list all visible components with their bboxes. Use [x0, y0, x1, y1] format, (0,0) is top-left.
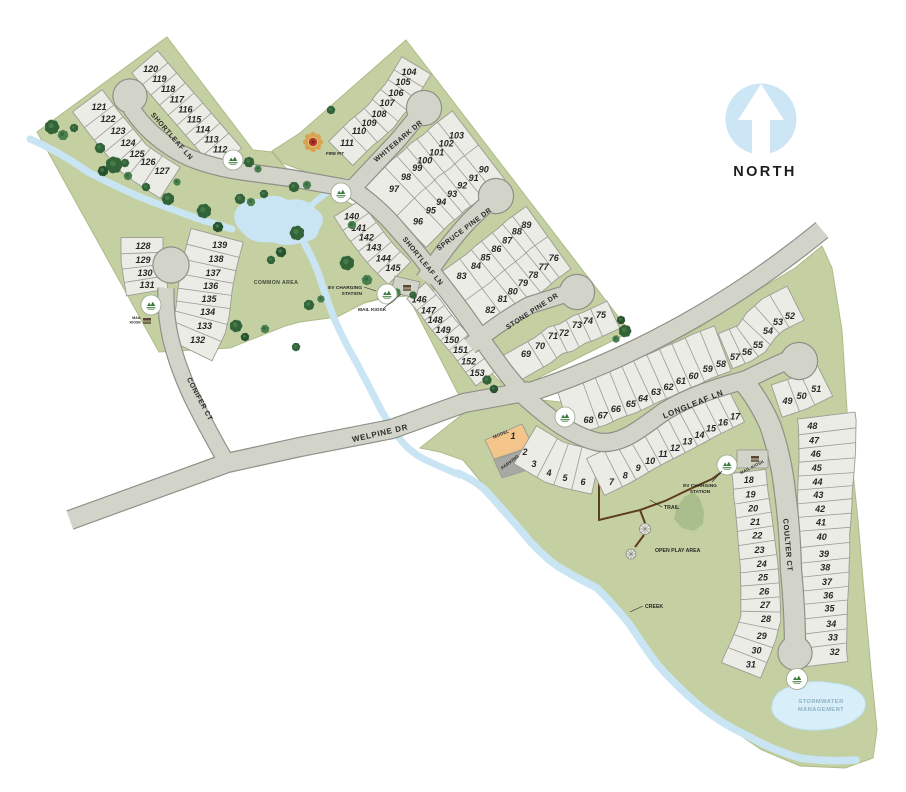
- svg-text:44: 44: [811, 477, 822, 487]
- svg-text:31: 31: [746, 660, 756, 670]
- svg-text:TRAIL: TRAIL: [664, 505, 680, 511]
- svg-text:92: 92: [457, 181, 467, 191]
- svg-text:9: 9: [636, 463, 641, 473]
- svg-text:15: 15: [706, 424, 717, 434]
- svg-text:38: 38: [820, 563, 830, 573]
- svg-text:20: 20: [747, 504, 758, 514]
- svg-text:52: 52: [785, 311, 795, 321]
- svg-text:49: 49: [781, 396, 792, 406]
- svg-text:132: 132: [190, 335, 205, 345]
- svg-text:94: 94: [436, 197, 446, 207]
- svg-text:66: 66: [611, 404, 622, 414]
- svg-text:103: 103: [449, 131, 464, 141]
- svg-text:1: 1: [510, 431, 515, 441]
- svg-text:107: 107: [379, 98, 395, 108]
- svg-text:KIOSK: KIOSK: [130, 321, 142, 325]
- svg-text:91: 91: [469, 173, 479, 183]
- svg-text:124: 124: [120, 138, 135, 148]
- svg-text:59: 59: [703, 364, 713, 374]
- svg-text:21: 21: [749, 517, 760, 527]
- svg-text:97: 97: [389, 184, 400, 194]
- svg-text:142: 142: [359, 233, 374, 243]
- svg-text:96: 96: [413, 217, 424, 227]
- svg-text:30: 30: [751, 646, 761, 656]
- svg-text:65: 65: [626, 399, 637, 409]
- svg-text:13: 13: [682, 437, 692, 447]
- svg-text:98: 98: [401, 172, 411, 182]
- svg-text:83: 83: [457, 271, 467, 281]
- svg-text:34: 34: [826, 619, 836, 629]
- svg-text:42: 42: [814, 504, 825, 514]
- svg-text:139: 139: [212, 240, 227, 250]
- svg-text:136: 136: [203, 281, 219, 291]
- svg-text:116: 116: [178, 104, 193, 114]
- svg-text:40: 40: [816, 532, 827, 542]
- svg-text:112: 112: [213, 145, 227, 155]
- svg-text:47: 47: [808, 435, 820, 445]
- svg-text:63: 63: [651, 387, 661, 397]
- svg-text:152: 152: [461, 357, 476, 367]
- svg-text:114: 114: [196, 124, 210, 134]
- svg-text:50: 50: [797, 391, 807, 401]
- svg-text:131: 131: [139, 280, 154, 290]
- svg-text:37: 37: [822, 577, 833, 587]
- svg-text:153: 153: [470, 368, 485, 378]
- svg-text:EV CHARGING: EV CHARGING: [328, 285, 362, 291]
- svg-text:129: 129: [135, 255, 150, 265]
- svg-text:16: 16: [718, 418, 729, 428]
- svg-text:36: 36: [823, 591, 834, 601]
- svg-text:51: 51: [811, 384, 821, 394]
- svg-text:3: 3: [531, 459, 536, 469]
- svg-text:72: 72: [559, 328, 569, 338]
- svg-text:90: 90: [479, 165, 489, 175]
- svg-text:78: 78: [528, 270, 538, 280]
- svg-text:19: 19: [745, 489, 755, 499]
- svg-text:12: 12: [670, 443, 680, 453]
- svg-text:OPEN PLAY AREA: OPEN PLAY AREA: [655, 548, 701, 554]
- svg-text:111: 111: [340, 138, 354, 148]
- svg-text:NORTH: NORTH: [733, 164, 797, 180]
- svg-text:138: 138: [208, 254, 223, 264]
- svg-text:23: 23: [753, 545, 764, 555]
- svg-text:75: 75: [596, 310, 607, 320]
- svg-text:144: 144: [376, 254, 391, 264]
- svg-text:130: 130: [137, 268, 152, 278]
- svg-text:115: 115: [187, 114, 202, 124]
- svg-text:27: 27: [759, 600, 771, 610]
- svg-text:29: 29: [756, 631, 767, 641]
- svg-text:123: 123: [110, 126, 125, 136]
- svg-text:58: 58: [716, 359, 726, 369]
- svg-text:43: 43: [812, 490, 823, 500]
- svg-text:25: 25: [757, 573, 769, 583]
- svg-text:135: 135: [201, 294, 217, 304]
- svg-text:39: 39: [819, 549, 829, 559]
- svg-text:121: 121: [91, 102, 106, 112]
- svg-text:79: 79: [518, 278, 528, 288]
- svg-text:147: 147: [421, 305, 437, 315]
- svg-text:10: 10: [645, 456, 655, 466]
- svg-text:41: 41: [815, 518, 826, 528]
- svg-text:113: 113: [204, 134, 218, 144]
- svg-text:18: 18: [744, 475, 754, 485]
- svg-text:117: 117: [170, 94, 185, 104]
- svg-text:STATION: STATION: [342, 291, 363, 297]
- svg-text:137: 137: [205, 268, 221, 278]
- svg-text:82: 82: [485, 305, 495, 315]
- svg-text:122: 122: [100, 114, 115, 124]
- svg-text:MAIL KIOSK: MAIL KIOSK: [358, 307, 387, 313]
- svg-text:4: 4: [545, 468, 551, 478]
- svg-text:70: 70: [535, 341, 545, 351]
- svg-text:68: 68: [583, 415, 593, 425]
- svg-text:86: 86: [491, 244, 502, 254]
- svg-text:54: 54: [763, 326, 773, 336]
- svg-text:77: 77: [538, 262, 549, 272]
- svg-text:101: 101: [429, 147, 444, 157]
- svg-text:118: 118: [161, 84, 175, 94]
- svg-text:61: 61: [676, 376, 686, 386]
- svg-text:120: 120: [143, 64, 158, 74]
- svg-text:150: 150: [444, 335, 459, 345]
- svg-text:104: 104: [401, 67, 416, 77]
- svg-text:STORMWATER: STORMWATER: [798, 699, 844, 705]
- svg-text:76: 76: [549, 253, 560, 263]
- svg-text:COMMON AREA: COMMON AREA: [254, 280, 299, 286]
- svg-text:57: 57: [730, 352, 741, 362]
- svg-text:134: 134: [200, 307, 215, 317]
- svg-text:17: 17: [730, 412, 741, 422]
- svg-text:64: 64: [638, 394, 648, 404]
- svg-text:93: 93: [447, 189, 457, 199]
- svg-text:24: 24: [756, 559, 767, 569]
- svg-text:106: 106: [388, 88, 404, 98]
- svg-text:80: 80: [508, 286, 518, 296]
- svg-text:145: 145: [385, 263, 401, 273]
- svg-text:133: 133: [197, 321, 212, 331]
- svg-text:105: 105: [395, 77, 411, 87]
- svg-text:88: 88: [512, 227, 522, 237]
- svg-text:60: 60: [688, 371, 698, 381]
- svg-text:127: 127: [154, 166, 170, 176]
- svg-text:46: 46: [810, 449, 822, 459]
- svg-text:11: 11: [658, 449, 667, 459]
- svg-text:74: 74: [583, 316, 593, 326]
- svg-text:8: 8: [623, 471, 628, 481]
- svg-text:62: 62: [663, 382, 673, 392]
- svg-text:85: 85: [480, 252, 491, 262]
- svg-text:148: 148: [428, 315, 443, 325]
- svg-text:119: 119: [152, 74, 166, 84]
- svg-text:143: 143: [366, 242, 381, 252]
- svg-text:45: 45: [811, 463, 823, 473]
- svg-text:81: 81: [498, 294, 508, 304]
- svg-text:26: 26: [758, 586, 770, 596]
- svg-text:EV CHARGING: EV CHARGING: [683, 483, 717, 489]
- svg-text:28: 28: [760, 614, 771, 624]
- svg-text:73: 73: [572, 320, 582, 330]
- svg-text:STATION: STATION: [690, 489, 711, 495]
- svg-text:55: 55: [753, 340, 764, 350]
- svg-text:84: 84: [471, 261, 481, 271]
- svg-text:MANAGEMENT: MANAGEMENT: [798, 707, 844, 713]
- svg-text:151: 151: [453, 345, 468, 355]
- svg-text:140: 140: [344, 212, 359, 222]
- svg-text:67: 67: [598, 411, 609, 421]
- svg-text:2: 2: [521, 447, 527, 457]
- svg-text:87: 87: [502, 235, 513, 245]
- svg-text:53: 53: [773, 317, 783, 327]
- svg-text:110: 110: [352, 126, 366, 136]
- svg-text:149: 149: [436, 325, 451, 335]
- svg-text:35: 35: [824, 604, 835, 614]
- svg-text:CREEK: CREEK: [645, 604, 663, 610]
- svg-text:MAIL: MAIL: [132, 316, 142, 320]
- svg-text:22: 22: [751, 531, 762, 541]
- svg-text:69: 69: [521, 349, 531, 359]
- svg-text:128: 128: [135, 241, 150, 251]
- svg-text:32: 32: [830, 647, 840, 657]
- svg-text:FIRE PIT: FIRE PIT: [326, 151, 344, 156]
- svg-text:33: 33: [828, 633, 838, 643]
- svg-text:56: 56: [742, 347, 753, 357]
- svg-text:48: 48: [806, 421, 817, 431]
- svg-text:14: 14: [694, 430, 704, 440]
- svg-text:89: 89: [521, 220, 531, 230]
- svg-text:71: 71: [548, 331, 558, 341]
